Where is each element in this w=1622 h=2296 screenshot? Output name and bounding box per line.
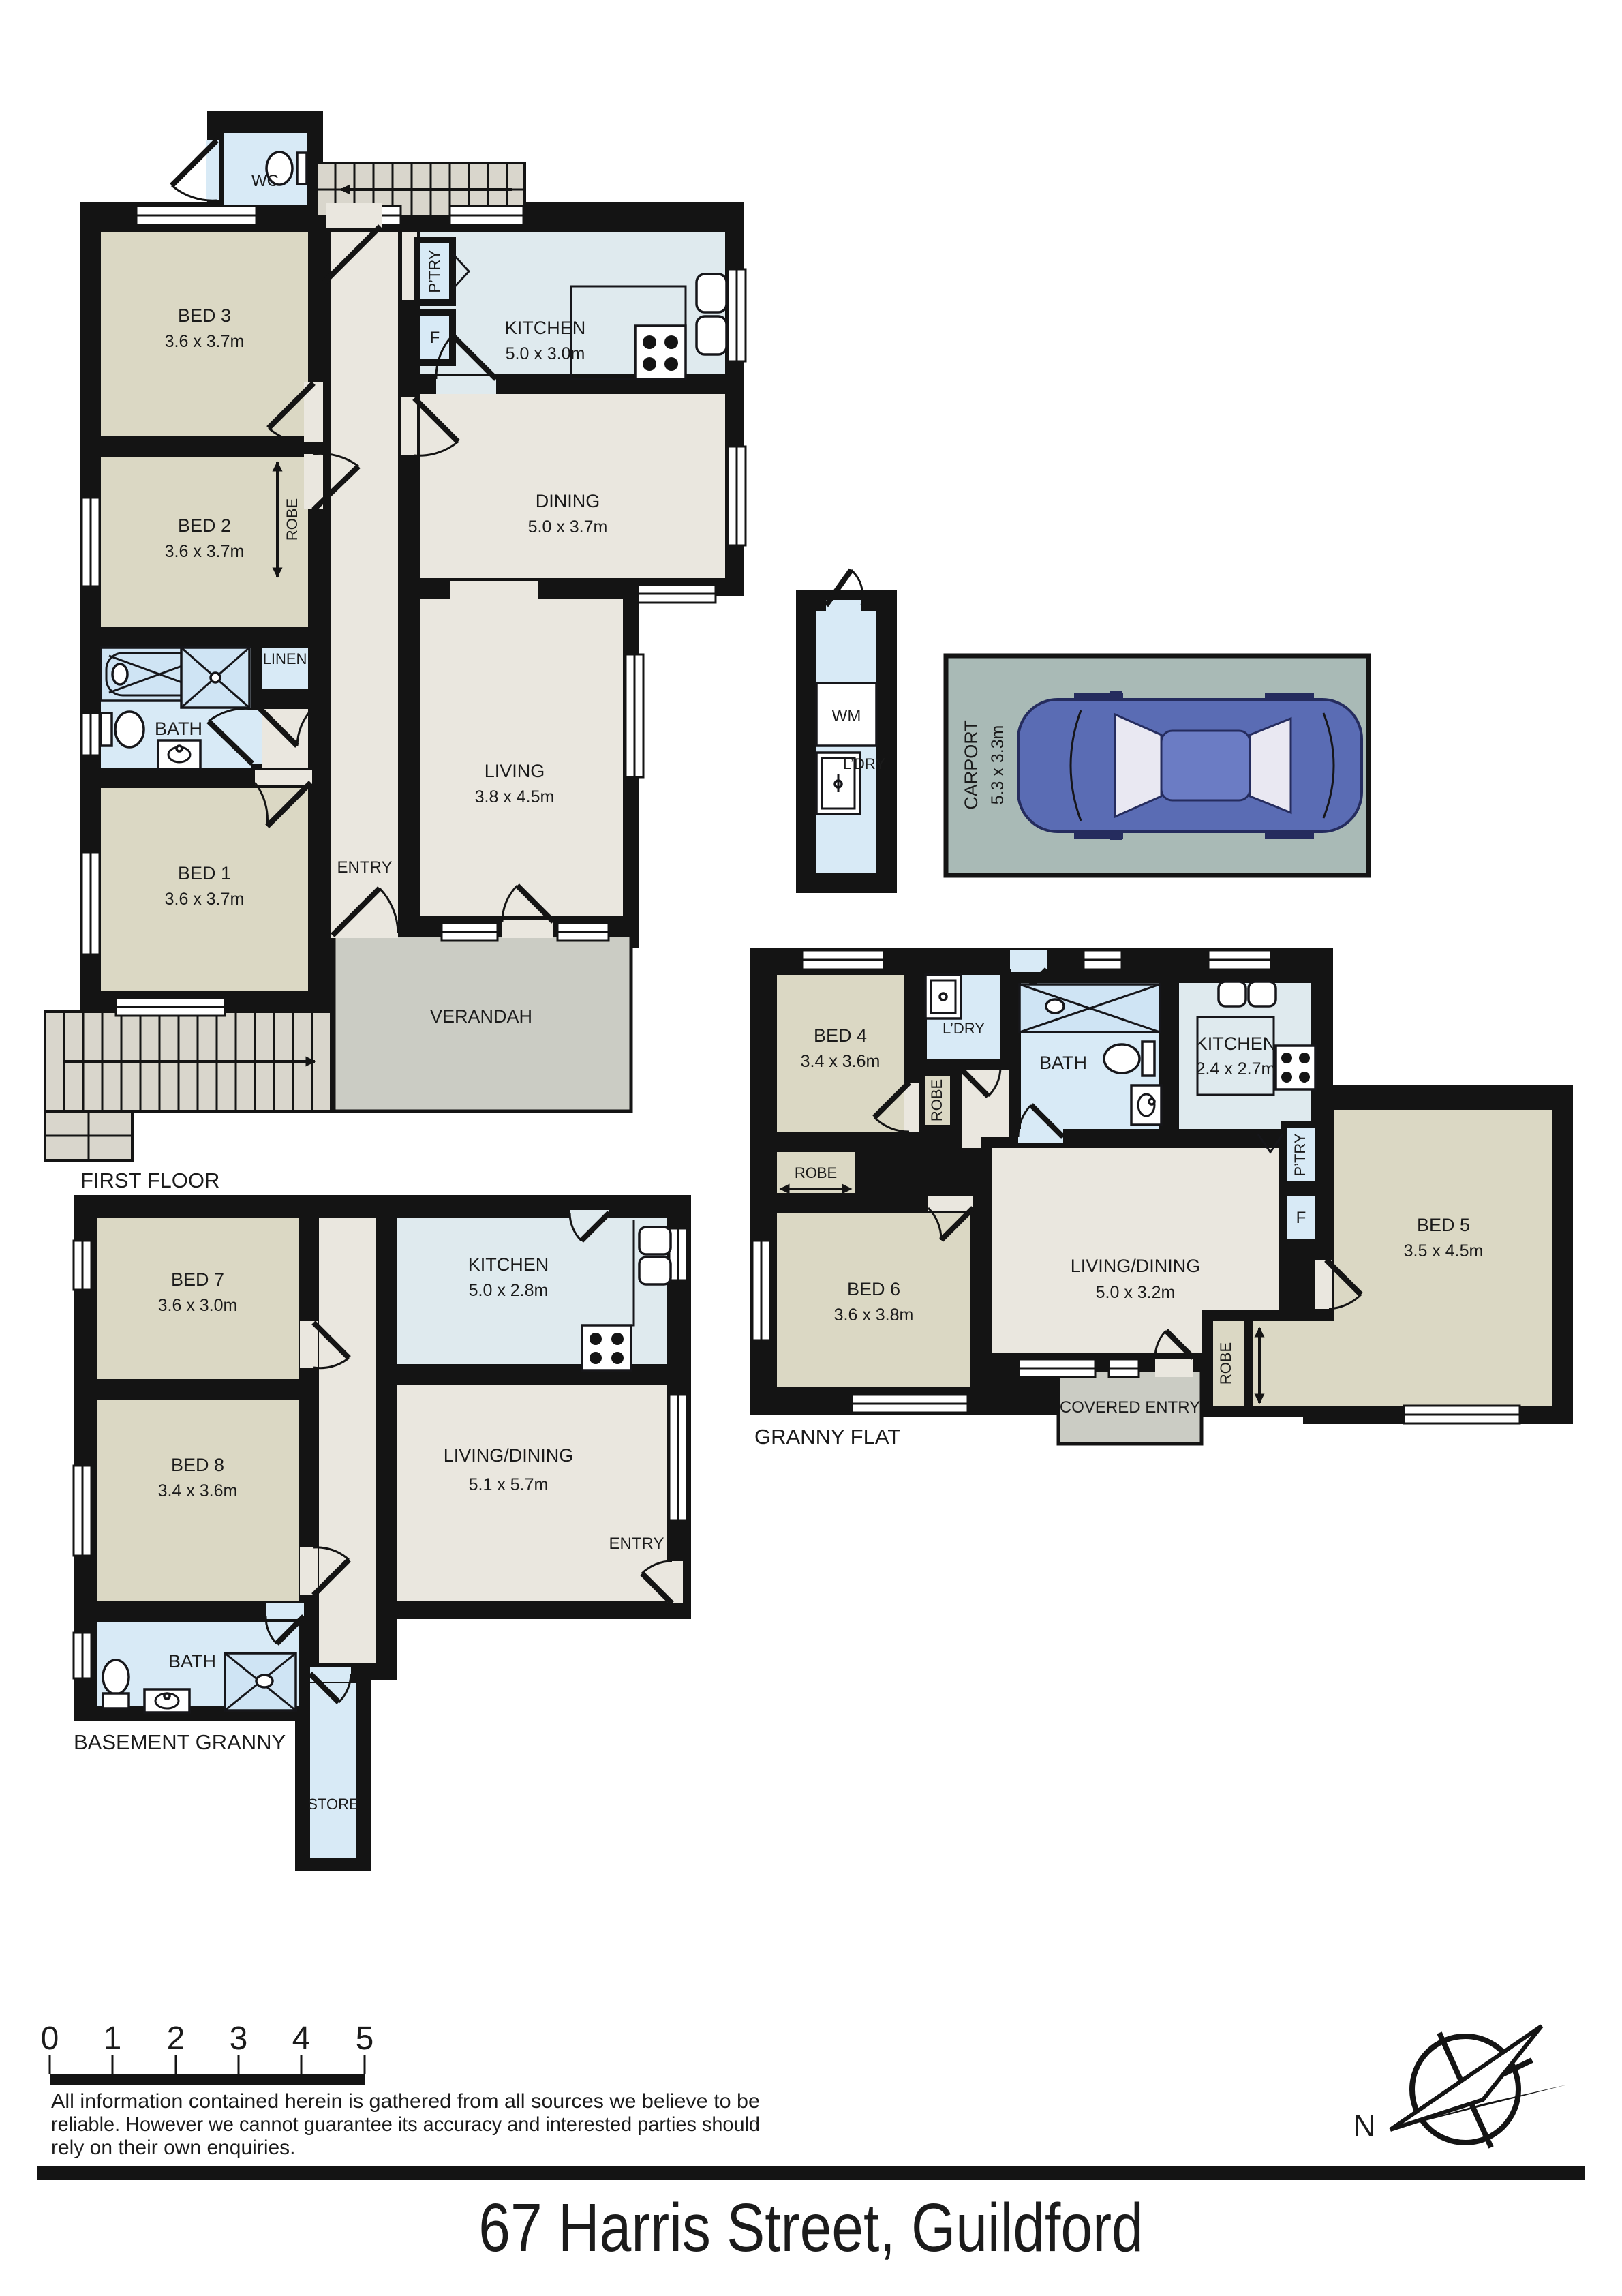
kitchen-dims: 5.0 x 3.0m: [506, 344, 585, 363]
opening-dining-living: [450, 581, 538, 600]
kitchen-dims: 5.0 x 2.8m: [469, 1281, 549, 1300]
bed6-dims: 3.6 x 3.8m: [834, 1305, 914, 1325]
bath-label: BATH: [168, 1651, 216, 1672]
scale-tick-1: 1: [104, 2021, 122, 2057]
room-store: [305, 1678, 362, 1863]
bed1-name: BED 1: [178, 863, 231, 883]
shower-icon: [1020, 984, 1160, 1032]
bed7-name: BED 7: [171, 1269, 224, 1290]
living-dims: 5.0 x 3.2m: [1096, 1283, 1176, 1302]
hallway-basement: [313, 1213, 382, 1668]
bed6-name: BED 6: [847, 1279, 900, 1299]
compass-north-label: N: [1353, 2108, 1375, 2143]
basement-granny-label: BASEMENT GRANNY: [74, 1730, 286, 1754]
shower-icon: [181, 648, 249, 708]
dining-name: DINING: [536, 491, 600, 511]
stove-icon: [1276, 1046, 1315, 1089]
robe-bed6-label: ROBE: [795, 1164, 837, 1181]
bed8-name: BED 8: [171, 1455, 224, 1475]
robe-label: ROBE: [284, 498, 301, 541]
robe-wall: [1244, 1316, 1253, 1411]
divider-bar: [37, 2166, 1585, 2180]
entry-label: ENTRY: [337, 858, 393, 877]
bed8-dims: 3.4 x 3.6m: [158, 1481, 238, 1500]
pantry-label: P’TRY: [1291, 1133, 1309, 1176]
ldry-label: L’DRY: [843, 755, 885, 772]
toilet-icon: [103, 1660, 129, 1708]
wm-label: WM: [832, 707, 861, 725]
car-icon: [1018, 691, 1362, 840]
living-name: LIVING/DINING: [1071, 1256, 1201, 1276]
carport-plan: CARPORT 5.3 x 3.3m: [946, 656, 1368, 875]
shower-icon: [225, 1653, 296, 1710]
kitchen-name: KITCHEN: [468, 1254, 549, 1275]
bed4-dims: 3.4 x 3.6m: [801, 1052, 881, 1071]
carport-dims: 5.3 x 3.3m: [988, 725, 1007, 805]
kitchen-name: KITCHEN: [1195, 1033, 1276, 1054]
carport-name: CARPORT: [961, 720, 981, 810]
sink-icon: [144, 1689, 189, 1712]
bed3-name: BED 3: [178, 305, 231, 326]
footer: 0 1 2 3 4 5 All information contained he…: [37, 2021, 1585, 2266]
sink-icon: [1131, 1085, 1161, 1125]
covered-entry-label: COVERED ENTRY: [1060, 1398, 1200, 1417]
entry-label: ENTRY: [609, 1535, 664, 1553]
kitchen-name: KITCHEN: [505, 318, 586, 338]
wc-label: WC: [251, 172, 279, 190]
floorplan-page: ROBE WC BED 3 3.6 x 3.7m BED 2 3.6 x 3.7…: [0, 0, 1622, 2296]
sink-icon: [158, 740, 200, 769]
toilet-icon: [1104, 1042, 1154, 1076]
bath-label: BATH: [1039, 1053, 1087, 1073]
scale-tick-4: 4: [292, 2021, 311, 2057]
hallway: [326, 226, 403, 935]
disclaimer-line3: rely on their own enquiries.: [51, 2136, 296, 2159]
laundry-plan: WM L’DRY: [796, 570, 897, 893]
scale-bar: 0 1 2 3 4 5: [41, 2021, 374, 2085]
granny-flat-plan: BED 4 3.4 x 3.6m L’DRY ROBE BATH KITCHEN…: [750, 948, 1573, 1449]
room-dining: [414, 389, 731, 584]
fridge-label: F: [430, 329, 440, 347]
bed7-dims: 3.6 x 3.0m: [158, 1296, 238, 1315]
robe-bed4-label: ROBE: [928, 1079, 945, 1121]
scale-tick-2: 2: [167, 2021, 185, 2057]
first-floor-label: FIRST FLOOR: [80, 1168, 219, 1192]
store-label: STORE: [307, 1796, 358, 1813]
stove-icon: [582, 1325, 631, 1370]
living-name: LIVING: [485, 761, 545, 781]
bed4-name: BED 4: [814, 1025, 867, 1046]
bath-label: BATH: [155, 719, 202, 739]
bed3-dims: 3.6 x 3.7m: [165, 332, 245, 351]
room-living: [414, 593, 628, 922]
opening-laundry: [826, 600, 861, 620]
robe-bed5-label: ROBE: [1217, 1342, 1234, 1385]
page-title: 67 Harris Street, Guildford: [478, 2189, 1144, 2266]
ldry-label: L’DRY: [943, 1020, 985, 1037]
laundry-sink-icon: [925, 975, 961, 1018]
bed2-dims: 3.6 x 3.7m: [165, 542, 245, 561]
stove-icon: [635, 326, 686, 379]
first-floor-plan: ROBE WC BED 3 3.6 x 3.7m BED 2 3.6 x 3.7…: [45, 111, 746, 1192]
disclaimer-line1: All information contained herein is gath…: [51, 2090, 760, 2113]
living-dims: 5.1 x 5.7m: [469, 1475, 549, 1494]
pantry-label: P’TRY: [426, 250, 443, 292]
bed5-name: BED 5: [1417, 1215, 1470, 1235]
verandah-label: VERANDAH: [430, 1006, 532, 1027]
scale-tick-3: 3: [230, 2021, 248, 2057]
bed5-dims: 3.5 x 4.5m: [1404, 1241, 1484, 1260]
linen-label: LINEN: [263, 650, 307, 667]
living-dims: 3.8 x 4.5m: [475, 787, 555, 806]
basement-plan: BED 7 3.6 x 3.0m BED 8 3.4 x 3.6m BATH K…: [74, 1195, 691, 1871]
disclaimer-line2: reliable. However we cannot guarantee it…: [51, 2113, 760, 2136]
granny-flat-label: GRANNY FLAT: [754, 1425, 900, 1449]
compass-icon: [1390, 2026, 1567, 2147]
toilet-icon: [101, 712, 144, 747]
bed2-name: BED 2: [178, 515, 231, 536]
living-name: LIVING/DINING: [444, 1445, 574, 1466]
scale-tick-5: 5: [356, 2021, 374, 2057]
room-bed8: [91, 1394, 304, 1607]
kitchen-dims: 2.4 x 2.7m: [1196, 1059, 1276, 1078]
front-steps: [45, 1012, 331, 1160]
fridge-label: F: [1296, 1209, 1306, 1227]
scale-tick-0: 0: [41, 2021, 59, 2057]
dining-dims: 5.0 x 3.7m: [528, 517, 608, 537]
bed1-dims: 3.6 x 3.7m: [165, 890, 245, 909]
